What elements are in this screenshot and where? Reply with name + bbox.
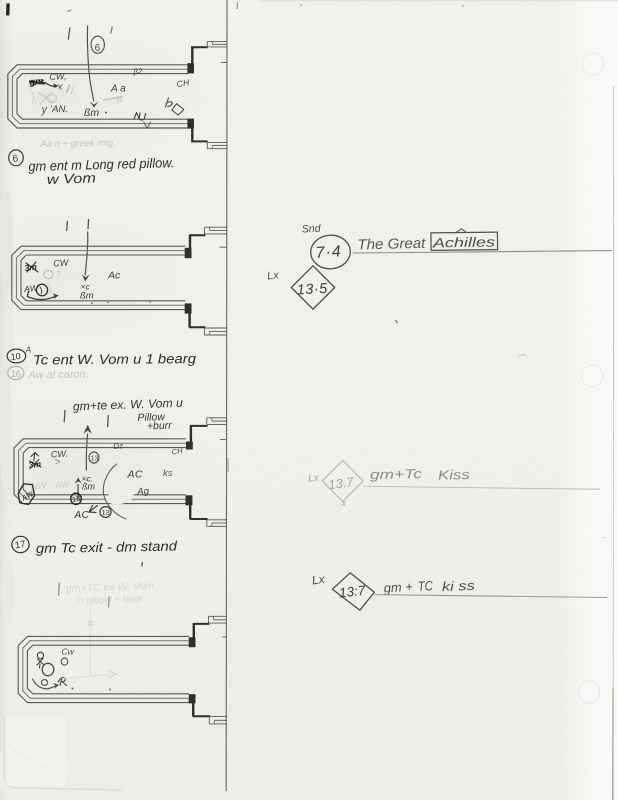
svg-text:16: 16 bbox=[11, 369, 21, 379]
svg-text:Snd: Snd bbox=[302, 222, 322, 235]
svg-text:A a: A a bbox=[110, 84, 126, 95]
svg-text:gm Tc exit - dm stand: gm Tc exit - dm stand bbox=[36, 539, 178, 556]
svg-text:Tc ent W. Vom u 1 bearg: Tc ent W. Vom u 1 bearg bbox=[33, 351, 197, 367]
svg-text:13·5: 13·5 bbox=[296, 281, 328, 299]
svg-text:TC: TC bbox=[417, 578, 433, 594]
svg-text:ßm: ßm bbox=[84, 107, 99, 119]
svg-text:z: z bbox=[92, 672, 97, 679]
svg-text:ki ss: ki ss bbox=[442, 578, 476, 594]
svg-text:CW.: CW. bbox=[51, 449, 69, 460]
svg-text:CW: CW bbox=[53, 257, 70, 268]
svg-text:?: ? bbox=[56, 270, 61, 279]
svg-text:Kiss: Kiss bbox=[438, 467, 471, 483]
svg-text:ks: ks bbox=[163, 468, 173, 479]
svg-text:gm+Tc: gm+Tc bbox=[370, 466, 423, 482]
svg-text:Lx: Lx bbox=[308, 473, 320, 485]
svg-text:ßm: ßm bbox=[80, 291, 94, 302]
svg-text:Achilles: Achilles bbox=[431, 234, 495, 250]
svg-text:AW: AW bbox=[54, 479, 70, 490]
svg-text:-: - bbox=[602, 533, 605, 542]
svg-text:Aw al caron.: Aw al caron. bbox=[27, 368, 89, 381]
svg-text:7·4: 7·4 bbox=[315, 243, 342, 262]
svg-text:13: 13 bbox=[91, 456, 99, 463]
svg-text:gm +: gm + bbox=[383, 579, 413, 596]
svg-text:CW,: CW, bbox=[49, 71, 67, 82]
svg-text:A: A bbox=[25, 346, 31, 355]
svg-text:Cw: Cw bbox=[62, 647, 75, 657]
svg-text:Dz: Dz bbox=[113, 441, 124, 451]
svg-text:+burr: +burr bbox=[147, 420, 173, 433]
svg-text:Ac: Ac bbox=[107, 270, 121, 282]
svg-text:6: 6 bbox=[95, 43, 101, 54]
svg-text:Lx: Lx bbox=[267, 269, 280, 282]
svg-text:Aa n + greek mtg.: Aa n + greek mtg. bbox=[39, 138, 115, 150]
svg-text:β2: β2 bbox=[132, 67, 143, 77]
svg-text:CH: CH bbox=[171, 446, 183, 456]
svg-text:AC: AC bbox=[74, 510, 90, 521]
svg-text:CH: CH bbox=[176, 77, 191, 89]
svg-text:13: 13 bbox=[102, 508, 110, 517]
svg-text:w Vom: w Vom bbox=[47, 170, 96, 187]
svg-text:13:7: 13:7 bbox=[338, 583, 366, 601]
svg-text:ßm: ßm bbox=[82, 482, 95, 492]
svg-text:x: x bbox=[341, 498, 347, 508]
svg-text:AC: AC bbox=[127, 469, 143, 481]
svg-text:17: 17 bbox=[14, 539, 26, 552]
svg-text:The Great: The Great bbox=[357, 236, 426, 254]
svg-text:10: 10 bbox=[10, 351, 21, 362]
svg-text:18: 18 bbox=[71, 494, 81, 504]
svg-text:Ag: Ag bbox=[136, 486, 150, 498]
svg-text:’AN.: ’AN. bbox=[50, 104, 68, 115]
